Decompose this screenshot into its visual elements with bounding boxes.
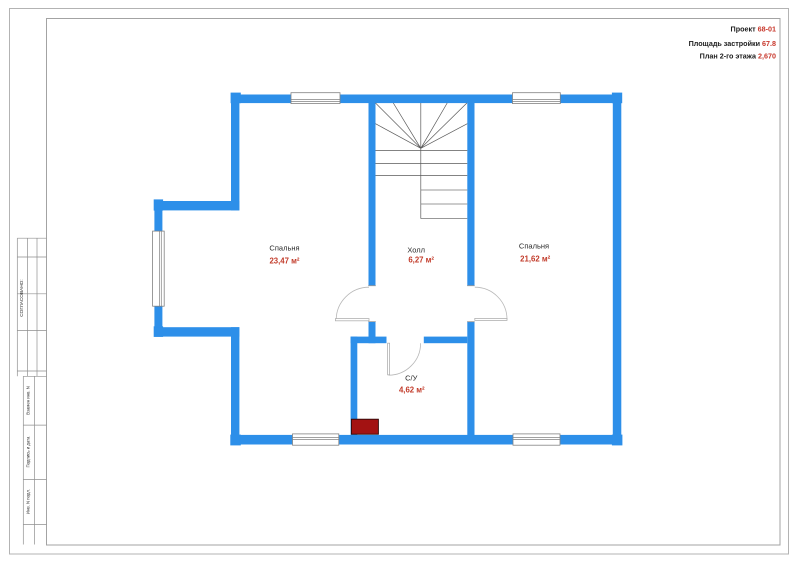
svg-text:Площадь застройки 67.8: Площадь застройки 67.8 — [689, 39, 776, 48]
svg-text:Взамен инв. N: Взамен инв. N — [26, 386, 31, 415]
svg-text:Спальня: Спальня — [269, 244, 299, 253]
svg-text:С/У: С/У — [405, 374, 418, 383]
svg-text:Инв. N подл.: Инв. N подл. — [26, 489, 31, 514]
svg-text:СОГЛАСОВАНО:: СОГЛАСОВАНО: — [19, 279, 25, 317]
svg-text:21,62 м²: 21,62 м² — [520, 255, 550, 264]
svg-text:План 2-го этажа 2,670: План 2-го этажа 2,670 — [700, 52, 776, 61]
svg-text:4,62 м²: 4,62 м² — [399, 386, 425, 395]
svg-text:6,27 м²: 6,27 м² — [408, 256, 434, 265]
svg-text:Спальня: Спальня — [519, 242, 549, 251]
svg-text:Холл: Холл — [407, 246, 425, 255]
svg-text:Проект 68-01: Проект 68-01 — [731, 25, 776, 34]
svg-text:23,47 м²: 23,47 м² — [269, 257, 299, 266]
svg-text:Подпись и дата: Подпись и дата — [26, 436, 31, 468]
